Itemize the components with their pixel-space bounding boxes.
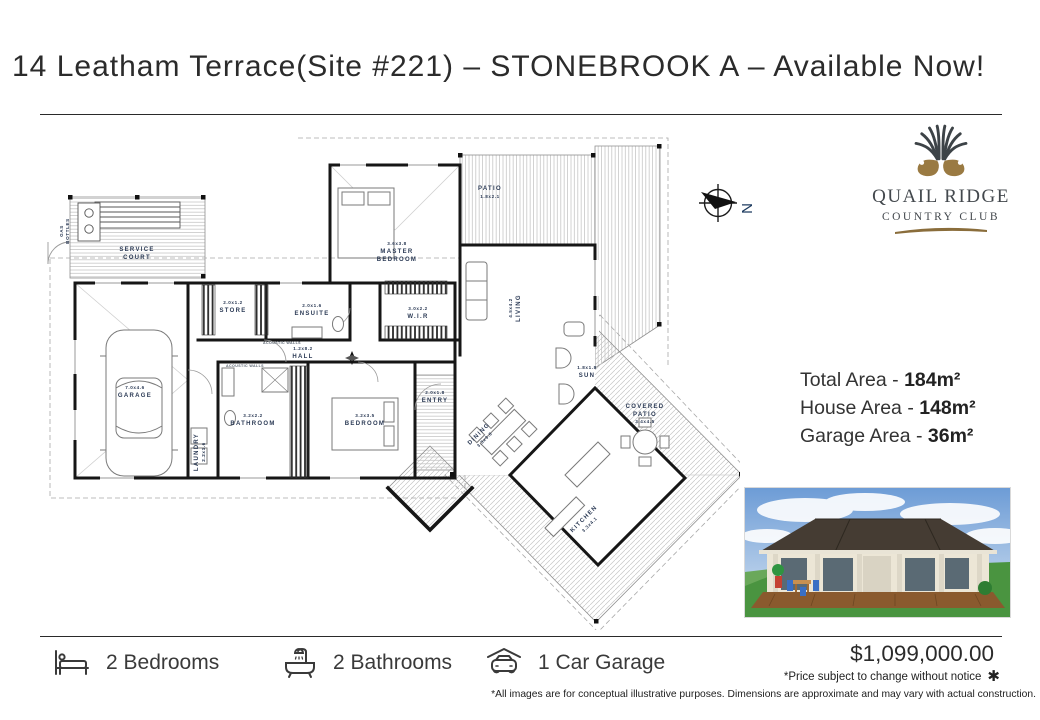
feature-bathrooms-label: 2 Bathrooms — [333, 651, 452, 675]
price-note: *Price subject to change without notice✱ — [784, 671, 1000, 683]
room-label-garage: GARAGE — [118, 393, 152, 399]
total-area-row: Total Area - 184m² — [800, 366, 976, 394]
svg-text:3.2x2.2: 3.2x2.2 — [243, 413, 263, 418]
svg-text:ACOUSTIC WALLS: ACOUSTIC WALLS — [226, 364, 264, 368]
svg-text:BOTTLES: BOTTLES — [65, 218, 70, 244]
area-summary: Total Area - 184m² House Area - 148m² Ga… — [800, 366, 976, 450]
svg-text:2.0x1.8: 2.0x1.8 — [425, 390, 445, 395]
svg-text:LIVING: LIVING — [516, 294, 522, 322]
page-title: 14 Leatham Terrace(Site #221) – STONEBRO… — [12, 50, 1036, 84]
title-divider — [40, 114, 1002, 115]
svg-text:3.4x4.5: 3.4x4.5 — [635, 419, 655, 424]
room-label-master-bedroom: MASTER — [380, 249, 413, 255]
svg-text:2.0x1.6: 2.0x1.6 — [302, 303, 322, 308]
car-top-view — [100, 330, 178, 476]
garage-area-value: 36m² — [928, 425, 974, 447]
feature-bedrooms: 2 Bedrooms — [52, 643, 219, 683]
asterisk-mark: ✱ — [987, 672, 1000, 682]
feature-garage-label: 1 Car Garage — [538, 651, 665, 675]
room-label-entry: ENTRY — [422, 398, 449, 404]
svg-text:1.8x2.1: 1.8x2.1 — [480, 194, 500, 199]
total-area-value: 184m² — [904, 369, 960, 391]
svg-text:3.0x2.2: 3.0x2.2 — [408, 306, 428, 311]
svg-text:COURT: COURT — [123, 255, 151, 261]
bed-icon — [52, 647, 92, 679]
room-label-wir: W.I.R — [407, 314, 428, 320]
logo-name: QUAIL RIDGE — [856, 186, 1026, 208]
svg-text:LAUNDRY: LAUNDRY — [194, 433, 200, 471]
svg-text:3.2x3.5: 3.2x3.5 — [355, 413, 375, 418]
disclaimer: *All images are for conceptual illustrat… — [491, 689, 1036, 700]
garage-area-row: Garage Area - 36m² — [800, 422, 976, 450]
room-label-bedroom: BEDROOM — [345, 421, 385, 427]
svg-text:GAS: GAS — [59, 225, 64, 237]
price: $1,099,000.00 — [850, 641, 994, 667]
svg-text:4.5x4.2: 4.5x4.2 — [508, 298, 513, 318]
feature-bedrooms-label: 2 Bedrooms — [106, 651, 219, 675]
logo-tagline: COUNTRY CLUB — [856, 211, 1026, 223]
house-area-value: 148m² — [919, 397, 975, 419]
room-label-store: STORE — [219, 308, 246, 314]
flyer-page: 14 Leatham Terrace(Site #221) – STONEBRO… — [0, 0, 1040, 720]
house-area-row: House Area - 148m² — [800, 394, 976, 422]
floor-plan: SERVICE COURT GAS BOTTLES 7.0x4.6 GARAGE… — [40, 130, 740, 630]
quail-ridge-logo: QUAIL RIDGE COUNTRY CLUB — [856, 122, 1026, 235]
car-garage-icon — [484, 646, 524, 680]
room-label-bathroom: BATHROOM — [230, 421, 275, 427]
room-label-sun: SUN — [579, 373, 596, 379]
bath-icon — [281, 645, 319, 681]
quail-birds-icon — [893, 122, 989, 184]
svg-text:3.6x3.8: 3.6x3.8 — [387, 241, 407, 246]
svg-text:PATIO: PATIO — [633, 412, 657, 418]
room-label-covered-patio: COVERED — [626, 404, 665, 410]
svg-text:1.8x1.8: 1.8x1.8 — [577, 365, 597, 370]
room-label-service-court: SERVICE — [119, 247, 154, 253]
svg-text:2.2x1.6: 2.2x1.6 — [201, 442, 206, 462]
footer-divider — [40, 636, 1002, 637]
room-label-gas-bottles: GAS BOTTLES — [59, 218, 70, 244]
room-label-patio: PATIO — [478, 186, 502, 192]
deck — [751, 592, 1005, 608]
acoustic-walls-note: ACOUSTIC WALLS — [263, 341, 301, 345]
svg-text:BEDROOM: BEDROOM — [377, 257, 417, 263]
feature-bathrooms: 2 Bathrooms — [281, 643, 452, 683]
house-render-image — [745, 488, 1010, 617]
compass-n-label: N — [738, 203, 755, 214]
logo-swoosh — [893, 227, 989, 235]
room-label-ensuite: ENSUITE — [294, 311, 329, 317]
room-label-hall: HALL — [292, 354, 313, 360]
room-dims-garage: 7.0x4.6 — [125, 385, 145, 390]
svg-text:2.0x1.2: 2.0x1.2 — [223, 300, 243, 305]
svg-text:1.2x8.2: 1.2x8.2 — [293, 346, 313, 351]
feature-garage: 1 Car Garage — [484, 643, 665, 683]
